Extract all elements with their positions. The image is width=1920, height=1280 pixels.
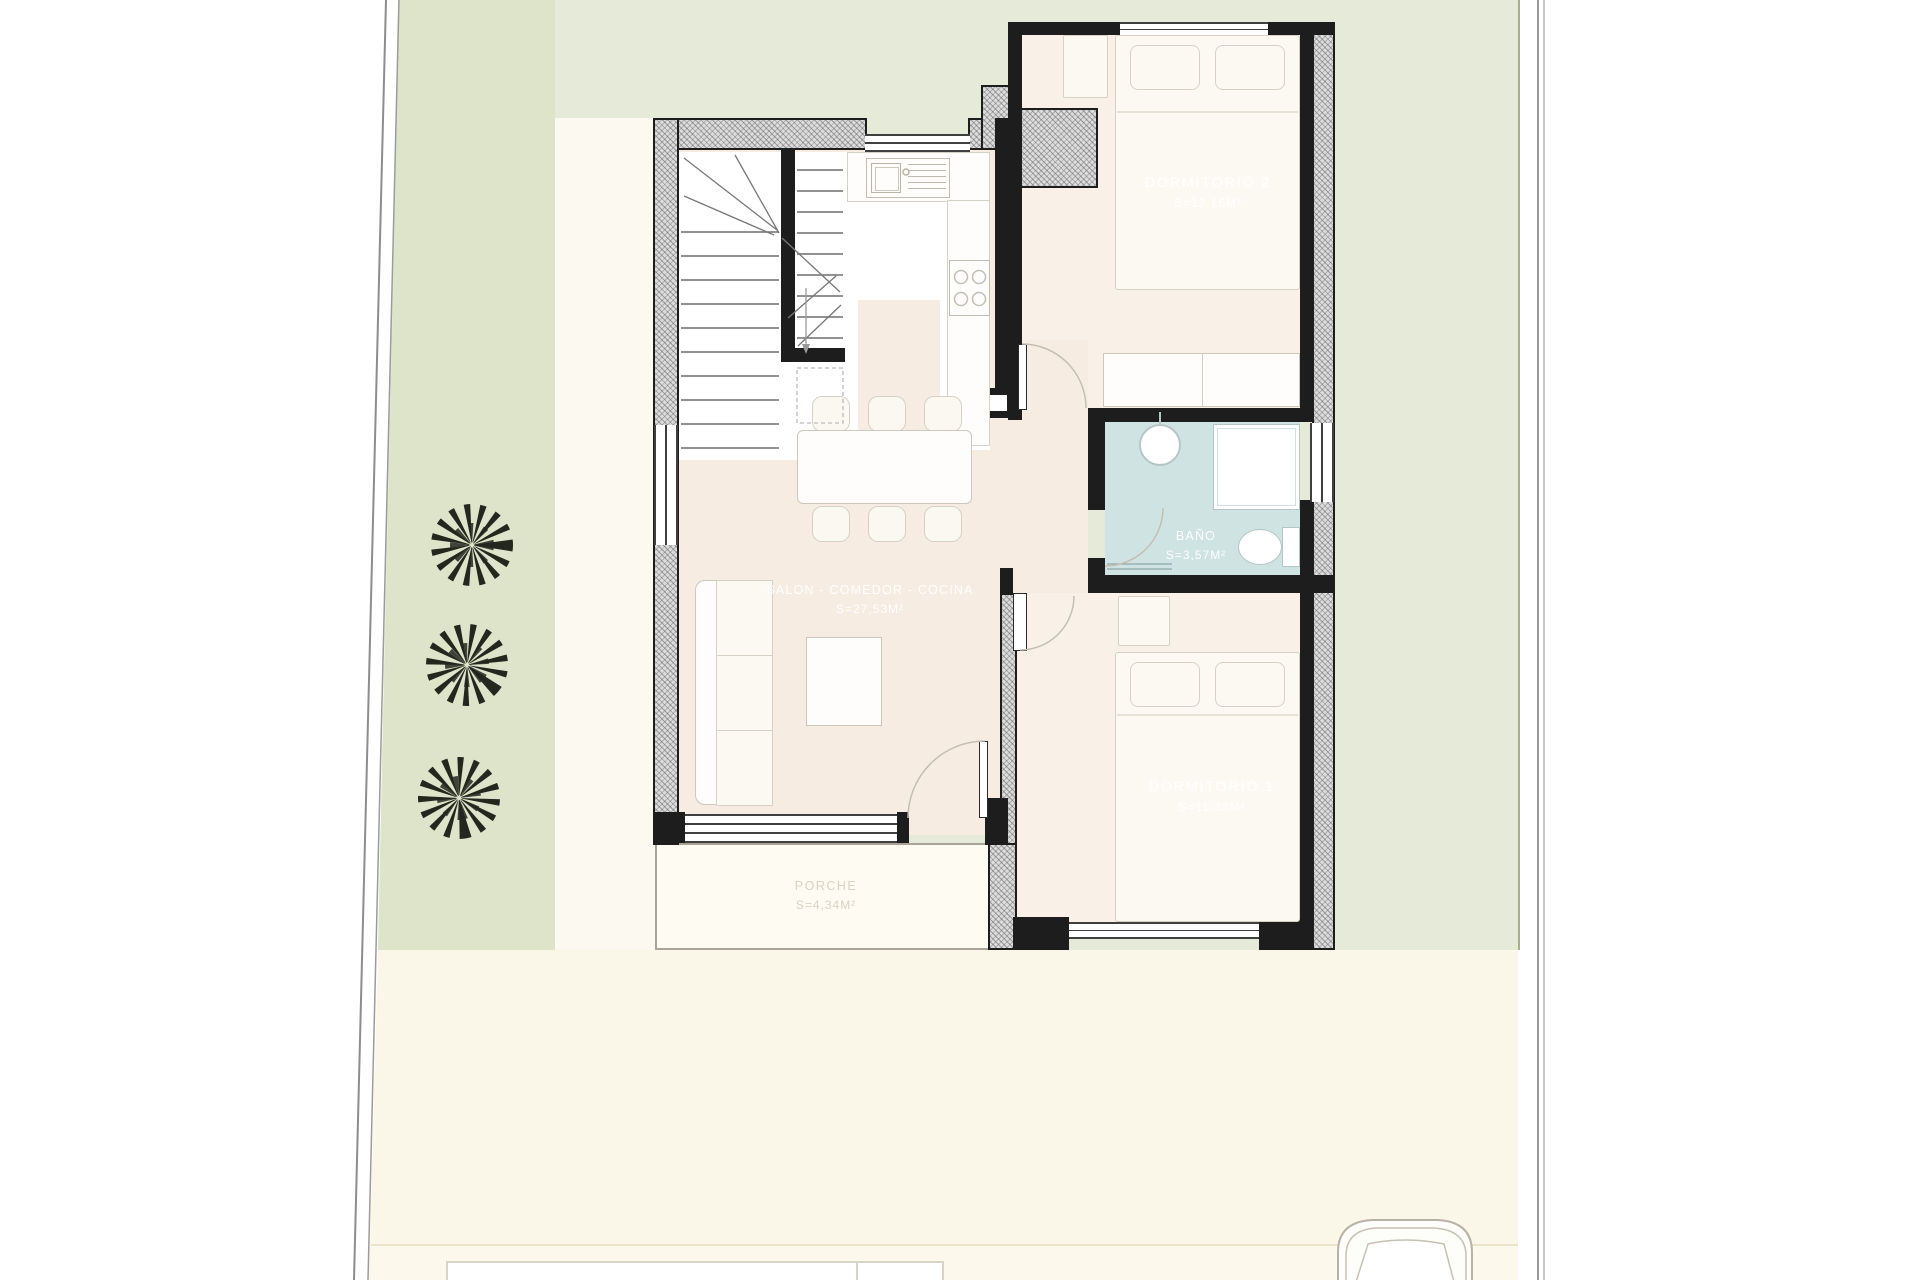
stair-treads-left	[681, 232, 779, 448]
room-name: BAÑO	[1166, 527, 1226, 546]
stair-direction-arrow	[802, 344, 810, 354]
room-area: S=27,53m²	[766, 600, 973, 619]
washbasin	[1140, 425, 1180, 465]
room-area: S=11,33m²	[1149, 798, 1275, 817]
door-arc-hall	[1022, 344, 1086, 408]
room-area: S=4,34m²	[795, 896, 857, 915]
room-label-dormitorio1: DORMITORIO 1 S=11,33m²	[1149, 776, 1275, 816]
room-label-porche: PORCHE S=4,34m²	[795, 877, 857, 915]
room-name: SALON - COMEDOR - COCINA	[766, 581, 973, 600]
plan-linework	[0, 0, 1920, 1280]
room-label-salon: SALON - COMEDOR - COCINA S=27,53m²	[766, 581, 973, 619]
cooktop-burners	[955, 271, 986, 306]
room-area: S=12,16m²	[1145, 194, 1271, 213]
room-name: PORCHE	[795, 877, 857, 896]
door-arc-bathroom	[1105, 508, 1163, 566]
understair-cupboard	[797, 368, 843, 423]
room-label-bano: BAÑO S=3,57m²	[1166, 527, 1226, 565]
room-name: DORMITORIO 1	[1149, 776, 1275, 798]
stair-treads-right	[797, 170, 843, 338]
room-label-dormitorio2: DORMITORIO 2 S=12,16m²	[1145, 172, 1271, 212]
sink-faucet	[903, 169, 909, 175]
room-name: DORMITORIO 2	[1145, 172, 1271, 194]
floor-plan-sheet: SALON - COMEDOR - COCINA S=27,53m² DORMI…	[0, 0, 1920, 1280]
room-area: S=3,57m²	[1166, 546, 1226, 565]
door-arc-porch	[908, 741, 985, 818]
door-arc-bedroom1	[1020, 596, 1074, 650]
